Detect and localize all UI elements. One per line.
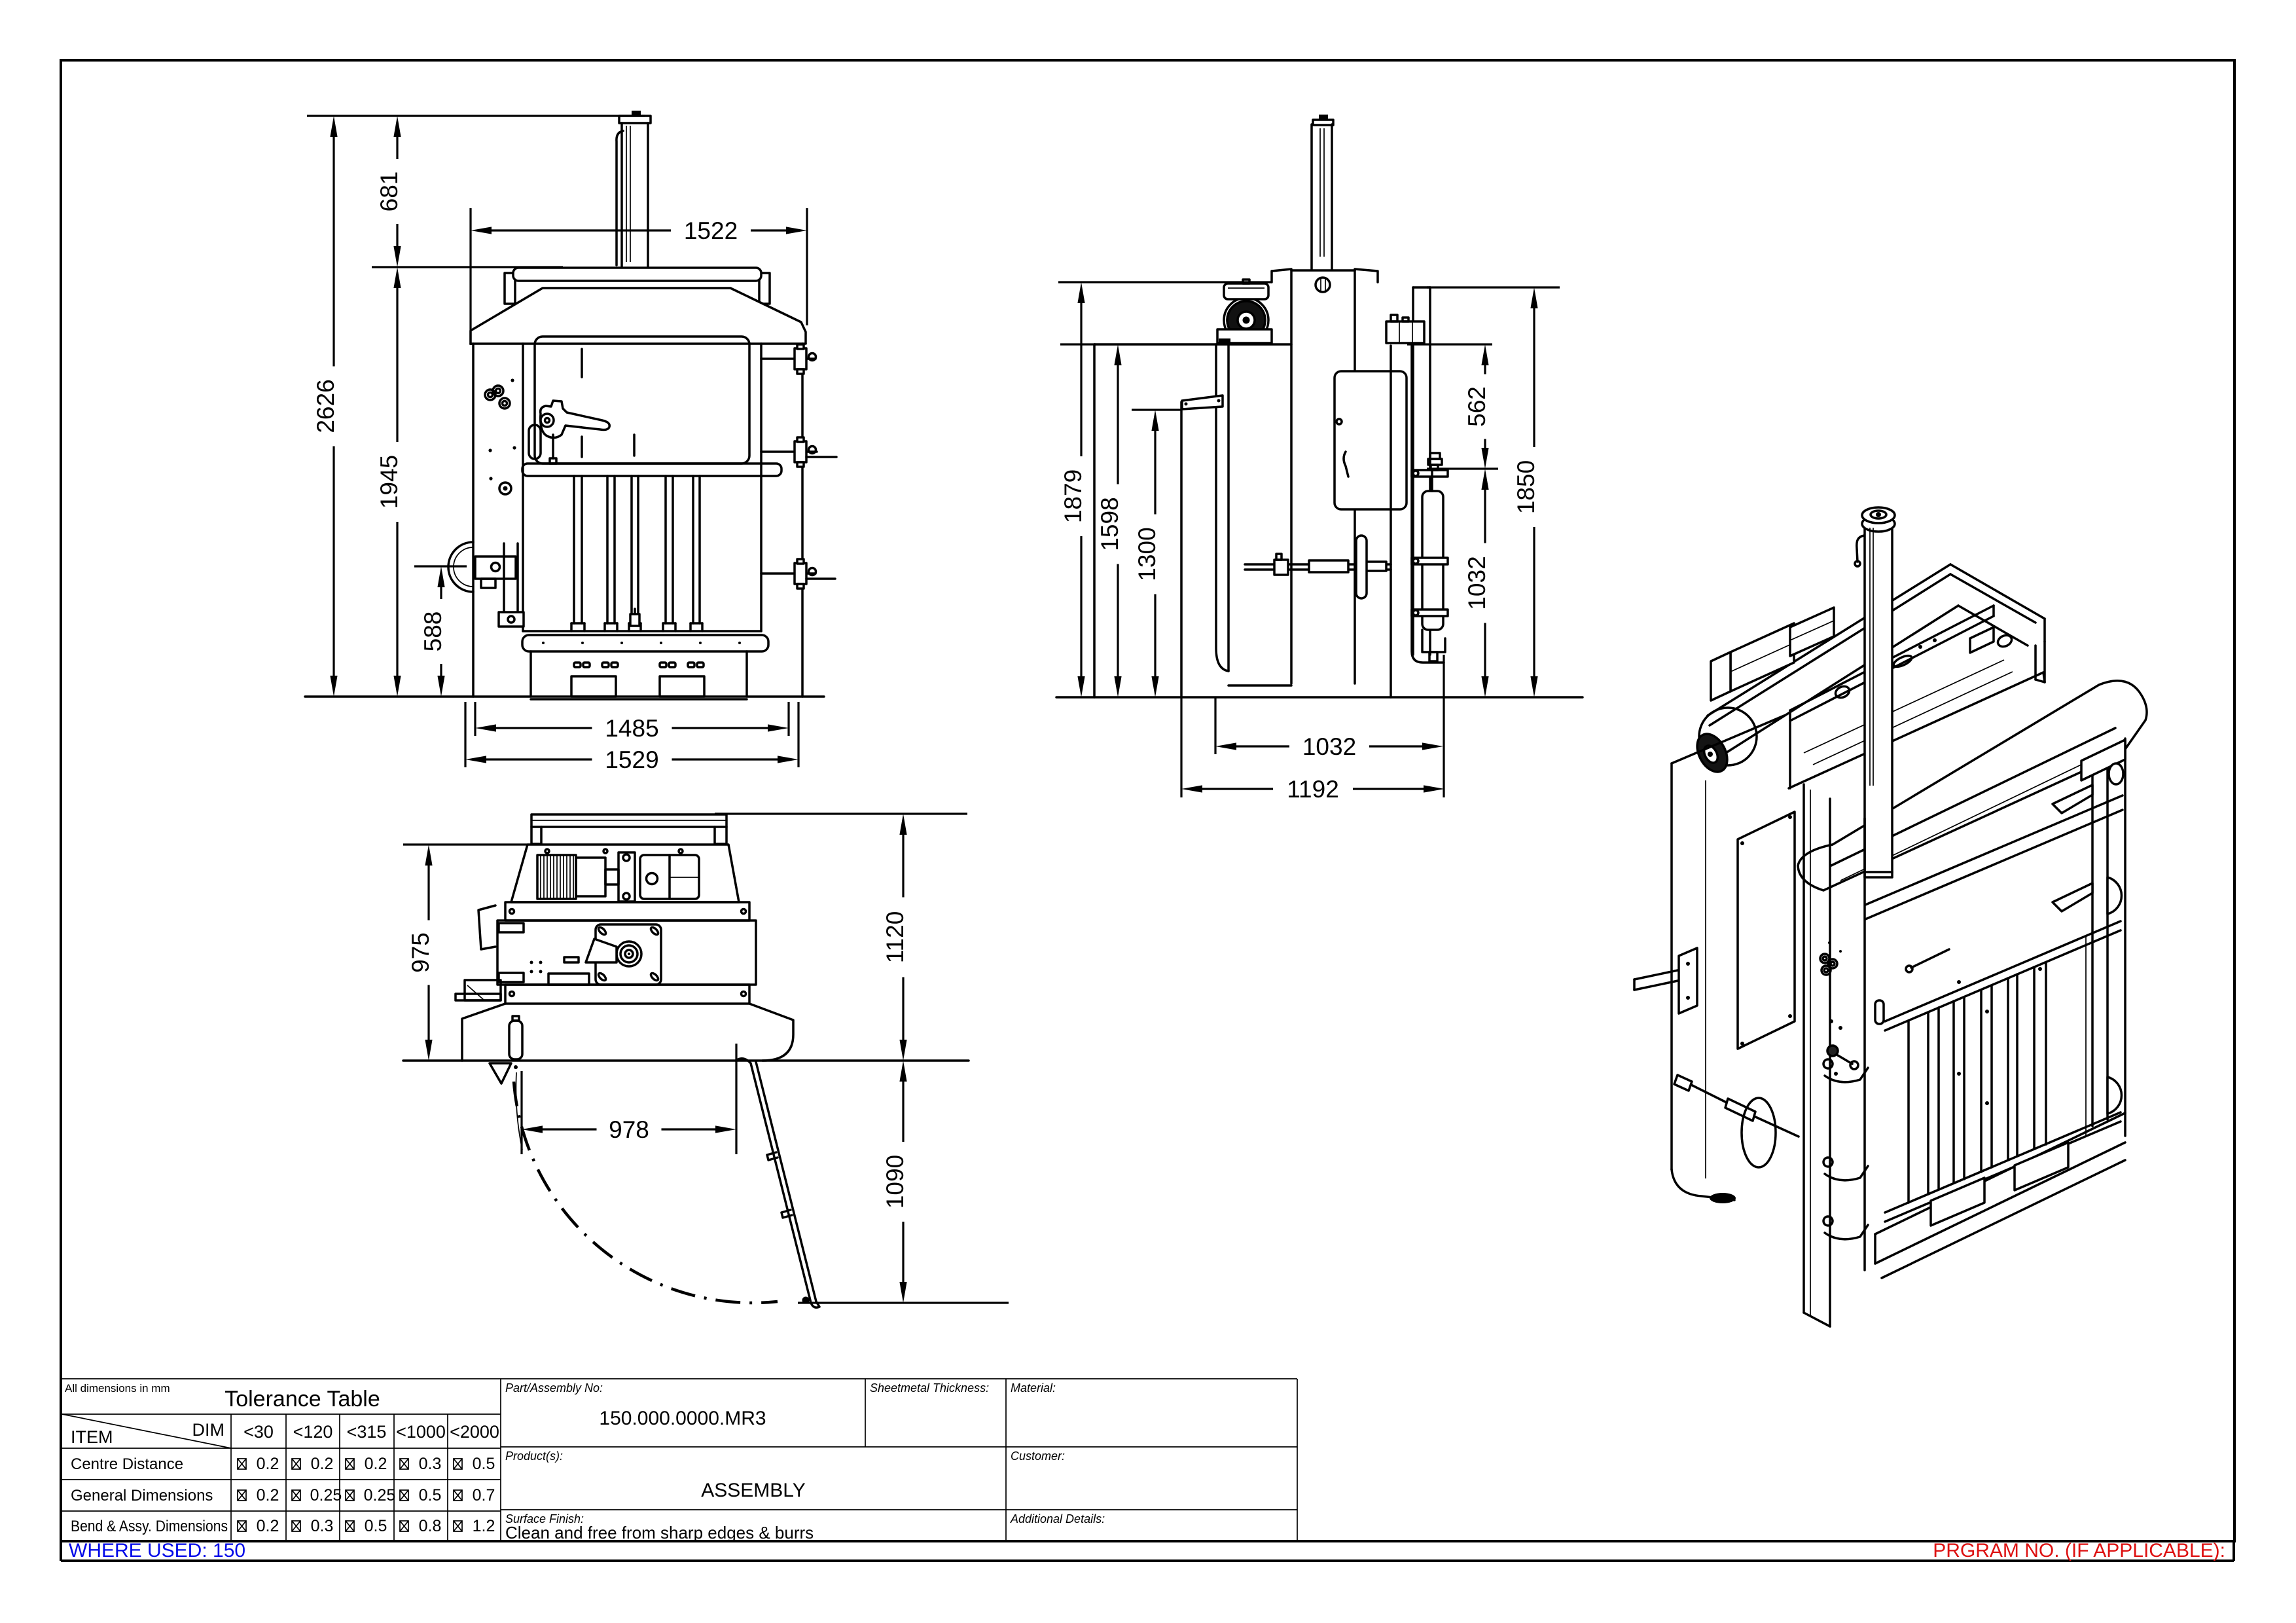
svg-text:<30: <30 bbox=[243, 1422, 274, 1442]
svg-text:0.2: 0.2 bbox=[311, 1455, 334, 1473]
svg-text:All dimensions in mm: All dimensions in mm bbox=[65, 1382, 170, 1395]
svg-text:0.5: 0.5 bbox=[365, 1517, 387, 1535]
svg-text:WHERE USED: 150: WHERE USED: 150 bbox=[69, 1540, 245, 1561]
svg-text:Part/Assembly No:: Part/Assembly No: bbox=[505, 1381, 603, 1395]
svg-text:1945: 1945 bbox=[376, 455, 403, 509]
svg-text:<2000: <2000 bbox=[450, 1422, 499, 1442]
svg-text:Additional Details:: Additional Details: bbox=[1010, 1512, 1105, 1525]
svg-text:1598: 1598 bbox=[1096, 497, 1123, 551]
svg-text:0.2: 0.2 bbox=[257, 1455, 279, 1473]
svg-text:DIM: DIM bbox=[192, 1420, 225, 1440]
svg-text:<1000: <1000 bbox=[396, 1422, 446, 1442]
svg-text:1032: 1032 bbox=[1463, 556, 1490, 610]
svg-text:150.000.0000.MR3: 150.000.0000.MR3 bbox=[599, 1408, 766, 1429]
svg-text:0.25: 0.25 bbox=[364, 1486, 396, 1504]
svg-text:562: 562 bbox=[1463, 386, 1490, 427]
svg-text:1090: 1090 bbox=[882, 1155, 908, 1209]
svg-text:1485: 1485 bbox=[605, 715, 658, 742]
svg-text:Centre Distance: Centre Distance bbox=[71, 1455, 183, 1473]
svg-text:1300: 1300 bbox=[1134, 527, 1160, 581]
svg-text:0.3: 0.3 bbox=[419, 1455, 442, 1473]
svg-text:1879: 1879 bbox=[1060, 469, 1086, 523]
svg-text:General Dimensions: General Dimensions bbox=[71, 1487, 213, 1504]
svg-text:1032: 1032 bbox=[1302, 733, 1356, 760]
svg-text:0.7: 0.7 bbox=[473, 1486, 495, 1504]
svg-text:1522: 1522 bbox=[684, 217, 738, 244]
svg-text:0.8: 0.8 bbox=[419, 1517, 442, 1535]
svg-text:1.2: 1.2 bbox=[473, 1517, 495, 1535]
svg-text:0.2: 0.2 bbox=[257, 1517, 279, 1535]
svg-text:0.5: 0.5 bbox=[419, 1486, 442, 1504]
svg-text:Product(s):: Product(s): bbox=[505, 1450, 563, 1463]
svg-text:2626: 2626 bbox=[312, 379, 339, 433]
svg-text:Sheetmetal Thickness:: Sheetmetal Thickness: bbox=[870, 1381, 989, 1395]
svg-text:<120: <120 bbox=[293, 1422, 333, 1442]
svg-text:1529: 1529 bbox=[605, 746, 658, 773]
svg-text:Tolerance Table: Tolerance Table bbox=[224, 1387, 380, 1412]
svg-text:0.5: 0.5 bbox=[473, 1455, 495, 1473]
svg-text:0.3: 0.3 bbox=[311, 1517, 334, 1535]
svg-text:1192: 1192 bbox=[1287, 776, 1339, 803]
svg-text:0.2: 0.2 bbox=[257, 1486, 279, 1504]
svg-text:681: 681 bbox=[376, 172, 403, 212]
svg-text:1120: 1120 bbox=[882, 911, 908, 964]
svg-text:Customer:: Customer: bbox=[1011, 1450, 1065, 1463]
svg-text:Bend & Assy. Dimensions: Bend & Assy. Dimensions bbox=[71, 1518, 228, 1535]
svg-text:0.2: 0.2 bbox=[365, 1455, 387, 1473]
svg-text:PRGRAM NO. (IF APPLICABLE):: PRGRAM NO. (IF APPLICABLE): bbox=[1933, 1540, 2225, 1561]
svg-text:978: 978 bbox=[609, 1116, 649, 1143]
svg-text:0.25: 0.25 bbox=[310, 1486, 342, 1504]
svg-text:ASSEMBLY: ASSEMBLY bbox=[701, 1480, 806, 1501]
svg-text:Material:: Material: bbox=[1011, 1381, 1056, 1395]
svg-text:1850: 1850 bbox=[1513, 460, 1539, 514]
svg-text:Clean and free from sharp edge: Clean and free from sharp edges & burrs bbox=[505, 1523, 814, 1542]
svg-text:975: 975 bbox=[407, 932, 434, 973]
svg-text:<315: <315 bbox=[347, 1422, 387, 1442]
svg-text:ITEM: ITEM bbox=[71, 1427, 113, 1447]
svg-text:588: 588 bbox=[420, 611, 446, 652]
